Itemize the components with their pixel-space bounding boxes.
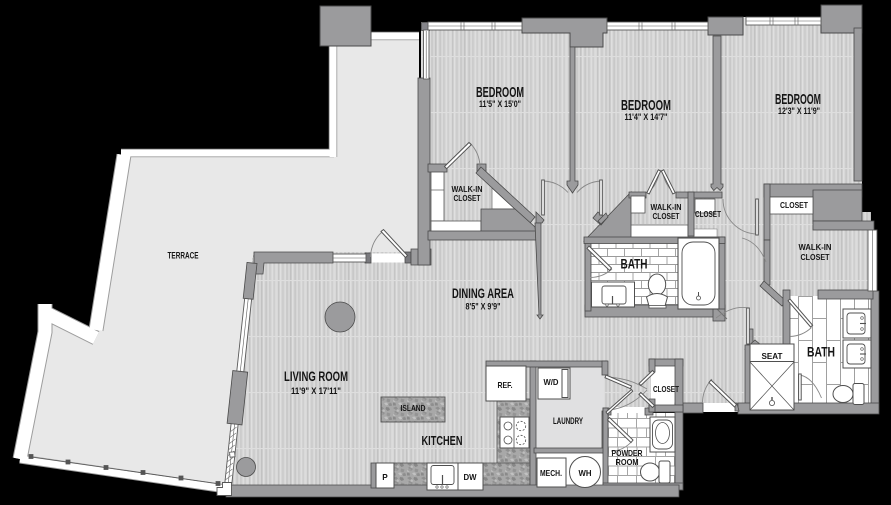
svg-text:ROOM: ROOM: [616, 458, 639, 467]
svg-text:WALK-IN: WALK-IN: [799, 243, 832, 252]
svg-text:DW: DW: [464, 473, 477, 482]
svg-text:CLOSET: CLOSET: [653, 385, 679, 394]
svg-text:WH: WH: [579, 469, 592, 478]
svg-text:TERRACE: TERRACE: [168, 251, 199, 262]
svg-text:BATH: BATH: [807, 344, 835, 360]
svg-text:POWDER: POWDER: [612, 449, 643, 458]
svg-text:12'3" X 11'9": 12'3" X 11'9": [778, 106, 820, 117]
svg-text:CLOSET: CLOSET: [695, 210, 721, 219]
svg-text:P: P: [382, 473, 388, 482]
svg-text:REF.: REF.: [498, 381, 513, 390]
svg-text:WALK-IN: WALK-IN: [651, 203, 682, 212]
svg-text:11'5" X 15'0": 11'5" X 15'0": [479, 99, 521, 110]
svg-text:KITCHEN: KITCHEN: [422, 433, 463, 448]
svg-text:CLOSET: CLOSET: [801, 253, 830, 262]
svg-text:WALK-IN: WALK-IN: [452, 185, 483, 194]
svg-text:CLOSET: CLOSET: [454, 194, 481, 203]
svg-text:SEAT: SEAT: [762, 352, 783, 361]
svg-text:11'4" X 14'7": 11'4" X 14'7": [625, 112, 668, 123]
svg-text:11'9" X 17'11": 11'9" X 17'11": [291, 386, 341, 397]
svg-text:8'5" X 9'9": 8'5" X 9'9": [466, 302, 501, 313]
svg-text:MECH.: MECH.: [540, 469, 562, 478]
svg-text:LAUNDRY: LAUNDRY: [553, 416, 583, 427]
svg-text:BATH: BATH: [621, 256, 648, 272]
svg-text:W/D: W/D: [544, 378, 559, 387]
svg-text:LIVING ROOM: LIVING ROOM: [284, 369, 348, 384]
svg-text:CLOSET: CLOSET: [780, 201, 808, 210]
svg-text:CLOSET: CLOSET: [653, 212, 680, 221]
svg-text:ISLAND: ISLAND: [401, 404, 426, 413]
svg-text:DINING AREA: DINING AREA: [452, 286, 514, 301]
